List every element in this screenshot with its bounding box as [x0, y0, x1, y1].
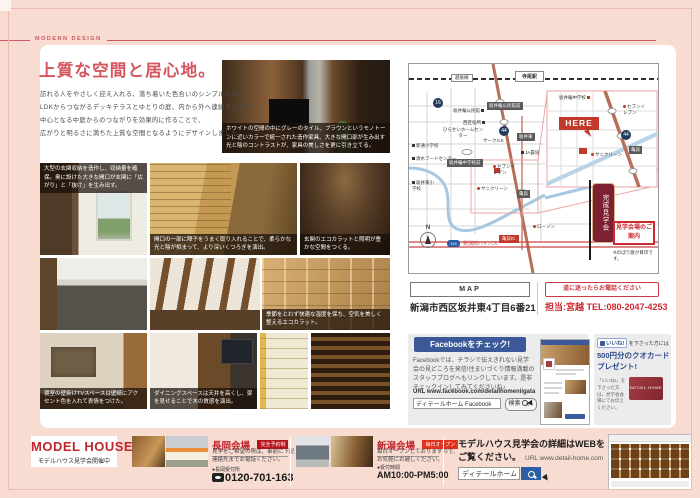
fb-text-line [544, 392, 559, 394]
contact-line: 担当:宮越 TEL:080-2047-4253 [545, 300, 668, 313]
divider [443, 437, 444, 486]
facebook-page-screenshot [540, 339, 590, 425]
map-label-ja: JA農協 [521, 150, 539, 156]
photo-wood-louver [311, 333, 390, 409]
fb-text-line [556, 373, 576, 375]
phone-note-box: 道に迷ったらお電話ください [545, 282, 659, 297]
fb-post-photo [565, 380, 586, 394]
access-map: 越後線 寺尾駅 坂井輪公民館 坂井輪公民館前 西区役所 16 新通小学校 ひらせ… [408, 63, 659, 274]
map-label-home-center: ひらせいホームセンター [441, 127, 485, 138]
route-shield-44: 44 [499, 126, 509, 136]
fb-profile-logo [543, 358, 555, 370]
here-badge: HERE [559, 117, 599, 130]
poi-dot-icon [493, 165, 496, 168]
poi-dot-icon [533, 225, 536, 228]
photo-caption: 開口の一部に障子をうまく取り入れることで、柔らかな光と陰が相まって、より深いくつ… [150, 234, 297, 255]
map-badge-kamegai: 亀貝 [517, 190, 530, 198]
map-badge-junior-high-mae: 坂井輪中学校前 [447, 159, 483, 167]
photo-caption: 季節をとわず快適な湿度を保ち、空気を美しく整えるエコカラット。 [262, 309, 390, 330]
photo-entry-hall: 大型の玄関収納を造作し、収納量を確保。奥に設けた大きな開口が玄関に「広がり」と「… [40, 163, 147, 255]
niigata-badge: 毎日オープン [422, 440, 458, 449]
like-row: いいね! を下さった方には [597, 338, 669, 348]
inset-label-seven-eleven: セブンイレブン [623, 104, 645, 115]
photo-bedroom-tv: 寝室の壁掛けTVスペースは壁紙にアクセント色を入れて表情をつけた。 [40, 333, 147, 409]
map-label-shindori-elementary: 新通小学校 [412, 143, 439, 149]
web-info-line2: ご覧ください。URL www.detail-home.com [458, 450, 603, 463]
window-decor [96, 191, 132, 241]
website-footer-bar [611, 481, 689, 487]
photo-ceiling-beams [150, 258, 260, 330]
fb-button-pill [565, 414, 585, 419]
open-house-flag: 完成見学会 [592, 183, 615, 243]
railway-label: 越後線 [451, 74, 473, 82]
photo-nagaoka-exterior [166, 436, 208, 467]
web-info-line1: モデルハウス見学会の詳細はWEBを [458, 437, 605, 450]
compass-icon: N [419, 225, 437, 248]
poi-square-icon [482, 121, 485, 124]
freedial-icon [212, 473, 224, 482]
route-shield-116: 116 [447, 240, 460, 247]
photo-caption: ダイニングスペースは天井を高くし、梁を見せることで木の質感を演出。 [150, 388, 257, 409]
inset-badge-kamegai: 亀貝 [629, 146, 642, 154]
corner-decoration [0, 0, 11, 11]
nagaoka-desc: 見学をご希望の際は、事前に下記 連絡先までお電話ください。 [212, 449, 295, 464]
poi-dot-icon [623, 105, 626, 108]
prize-note: 「いいね!」を下さった方は、見学会会場にてお伝えください。 [597, 378, 627, 412]
photo-dining: ダイニングスペースは天井を高くし、梁を見せることで木の質感を演出。 [150, 333, 257, 409]
inset-label-junior-high: 坂井輪中学校 [559, 95, 590, 101]
intro-paragraph: 訪れる人をやさしく迎え入れる、落ち着いた色合いのシンプルな外観。 LDKからつな… [40, 88, 258, 140]
nagaoka-phone: 0120-701-163 [212, 472, 294, 484]
inset-label-saniclean: サニクリーン [591, 152, 622, 158]
map-label-community-center: 坂井輪公民館 [453, 108, 484, 114]
inset-route-shield-44: 44 [621, 130, 631, 140]
route-shield-16: 16 [433, 98, 443, 108]
photo-niigata-interior [331, 436, 373, 467]
north-arrow-icon [425, 235, 431, 244]
intro-line: LDKからつながるデッキテラスとゆとりの庭、内から外へ連続する天井。 [40, 101, 258, 114]
web-search-button[interactable] [521, 467, 541, 480]
compass-n-label: N [419, 225, 437, 231]
poi-square-icon [412, 144, 415, 147]
fb-text-line [556, 369, 584, 371]
map-badge-sakaihigashi: 坂井東 [517, 133, 535, 141]
poi-square-icon [587, 96, 590, 99]
station-label: 寺尾駅 [515, 71, 544, 82]
divider [537, 282, 538, 315]
compass-circle [420, 232, 436, 248]
niigata-hours: AM10:00-PM5:00 [377, 470, 449, 480]
venue-address: 新潟市西区坂井東4丁目6番21 [410, 300, 536, 314]
thumbs-up-icon [600, 341, 605, 346]
divider [290, 437, 291, 486]
poi-square-icon [521, 151, 524, 154]
facebook-url: URL www.facebook.com/detailhomeniigata [413, 389, 535, 395]
cursor-icon [542, 474, 550, 482]
facebook-search-input[interactable] [413, 398, 501, 409]
flag-pole [589, 180, 591, 260]
fb-post-photo [544, 402, 562, 418]
map-badge-community-center-mae: 坂井輪公民館前 [487, 102, 523, 110]
like-badge: いいね! [597, 338, 627, 348]
photo-entry-ecocarat: 玄関のエコカラットと照明が豊かな空間をつくる。 [300, 163, 390, 255]
model-house-subtitle: モデルハウス見学会開催中 [31, 456, 117, 465]
website-header-bar [609, 435, 691, 442]
fb-text-line [544, 382, 562, 384]
tagline: MODERN DESIGN [30, 36, 107, 42]
poi-dot-icon [477, 187, 480, 190]
fb-text-line [544, 387, 562, 389]
like-suffix: を下さった方には [629, 341, 669, 347]
search-icon [528, 471, 535, 478]
prize-text: 500円分のクオカード プレゼント! [597, 350, 670, 373]
map-label-circle-k: サークルK [483, 138, 504, 144]
web-url: URL www.detail-home.com [525, 455, 603, 462]
intro-line: 広がりと明るさに満ちた上質な空間となるようにデザインしました。 [40, 127, 258, 140]
map-label-sakaihigashi-elementary: 坂井東小学校 [412, 180, 436, 191]
quo-card-image: DETAIL HOME [629, 377, 663, 400]
tv-niche-decor [51, 347, 96, 377]
model-house-logo-box: MODEL HOUSE モデルハウス見学会開催中 [31, 436, 117, 467]
window-decor [221, 339, 253, 364]
facebook-body-text: Facebookでは、チラシで伝えきれない見学会の見どころを発信!住まいづくり情… [413, 357, 535, 393]
map-label-seven-eleven: セブンイレブン [493, 164, 517, 175]
page-title: 上質な空間と居心地。 [39, 57, 216, 81]
facebook-search-button[interactable]: 検索 [505, 398, 537, 411]
website-screenshot [608, 434, 692, 490]
model-house-title: MODEL HOUSE [31, 439, 117, 454]
photo-caption: 大型の玄関収納を造作し、収納量を確保。奥に設けた大きな開口が玄関に「広がり」と「… [40, 163, 147, 193]
poi-dot-icon [591, 153, 594, 156]
photo-shoji-closeup [260, 333, 308, 409]
poi-square-icon [412, 181, 415, 184]
intro-line: 中心となる中庭からのつながりを効果的に作ることで、 [40, 114, 258, 127]
map-label-bypass: 新潟西バイパス [463, 240, 498, 247]
nagaoka-badge: 完全予約制 [257, 440, 288, 449]
photo-nagaoka-interior [132, 436, 165, 467]
niigata-desc: 毎日オープンしておりますので、 お気軽にお越しください。 [377, 449, 459, 464]
contact-tel: TEL:080-2047-4253 [587, 302, 668, 312]
flag-note: ※のぼり旗が目印です。 [613, 250, 655, 263]
poi-square-icon [481, 109, 484, 112]
map-label-ward-office: 西区役所 [463, 120, 485, 126]
photo-caption: 玄関のエコカラットと照明が豊かな空間をつくる。 [300, 234, 390, 255]
photo-niigata-exterior [296, 436, 329, 467]
poi-square-icon [412, 157, 415, 160]
intro-line: 訪れる人をやさしく迎え入れる、落ち着いた色合いのシンプルな外観。 [40, 88, 258, 101]
map-badge-kamegai-ic: 亀貝IC [499, 235, 519, 243]
photo-ecocarat-wall: 季節をとわず快適な湿度を保ち、空気を美しく整えるエコカラット。 [262, 258, 390, 330]
venue-guide-box: 見学会場のご案内 [613, 221, 655, 245]
flyer-page: MODERN DESIGN 上質な空間と居心地。 訪れる人をやさしく迎え入れる、… [0, 0, 700, 498]
photo-shoji-room: 開口の一部に障子をうまく取り入れることで、柔らかな光と陰が相まって、より深いくつ… [150, 163, 297, 255]
web-search-input[interactable] [458, 467, 520, 480]
contact-person: 担当:宮越 [545, 302, 584, 312]
map-bar: MAP [410, 282, 530, 297]
map-label-saniclean: サニクリーン [477, 186, 508, 192]
website-photo-grid [611, 444, 689, 478]
map-label-lawson: ローソン [533, 224, 555, 230]
photo-caption: 寝室の壁掛けTVスペースは壁紙にアクセント色を入れて表情をつけた。 [40, 388, 147, 409]
photo-tile-floor [40, 258, 147, 330]
facebook-header: Facebookをチェック! [414, 337, 526, 352]
